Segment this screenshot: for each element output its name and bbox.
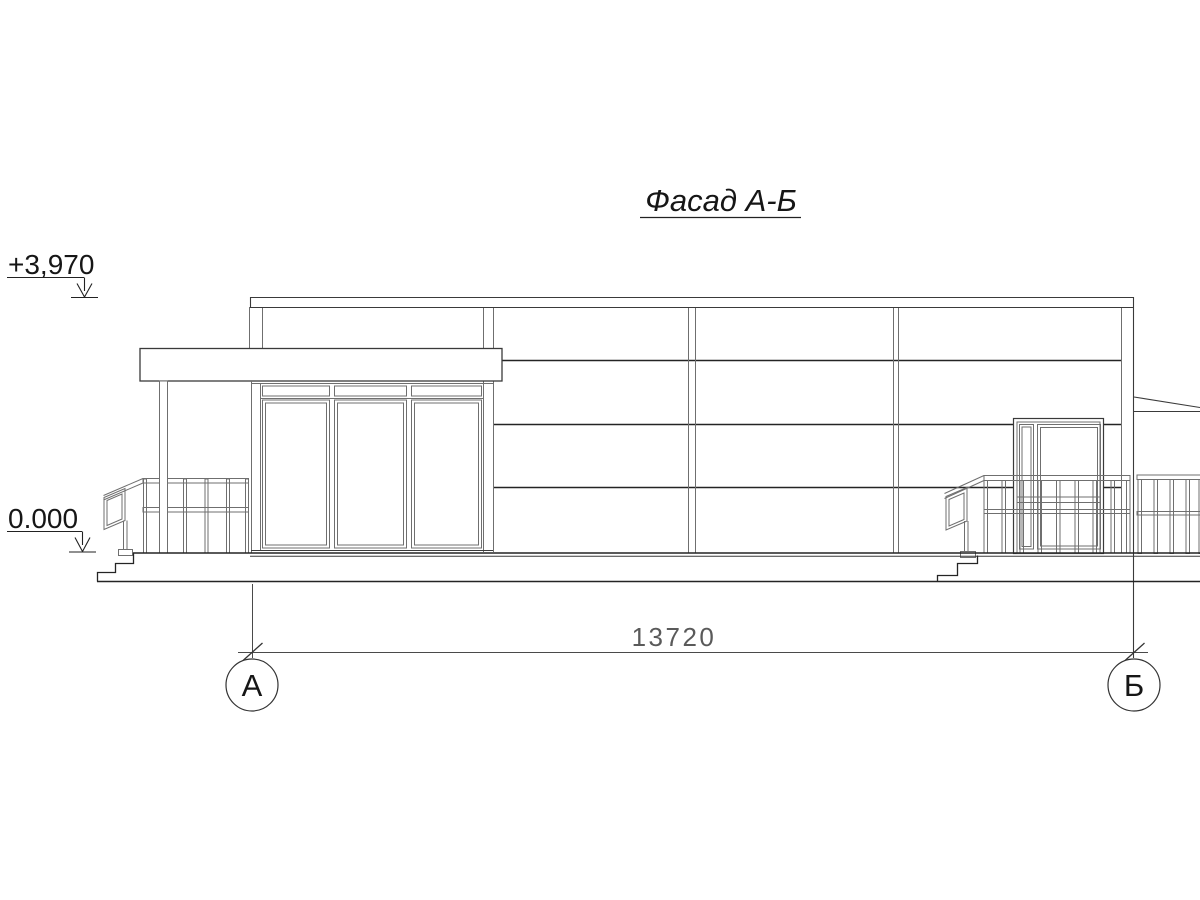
dimension-line: 13720 (238, 584, 1148, 661)
right-steps (938, 556, 978, 582)
storefront-glazing (251, 381, 493, 553)
drawing-title-text: Фасад А-Б (645, 183, 797, 218)
roof-band (250, 297, 1134, 308)
elevation-upper-value: +3,970 (8, 249, 94, 280)
axis-label-a: А (242, 668, 263, 703)
ground-platform (97, 553, 1200, 582)
facade-drawing-sheet: 13720 А Б +3,970 0.000 Фасад А-Б (0, 0, 1200, 900)
left-steps (98, 553, 134, 582)
axis-circle-a: А (226, 659, 278, 711)
axis-circle-b: Б (1108, 659, 1160, 711)
drawing-canvas: 13720 А Б +3,970 0.000 Фасад А-Б (0, 0, 1200, 900)
elevation-mark-upper: +3,970 (7, 249, 98, 298)
facade-columns (250, 307, 1122, 553)
axis-label-b: Б (1124, 668, 1144, 703)
entrance-door (1014, 419, 1104, 554)
dimension-value: 13720 (632, 622, 717, 652)
entrance-canopy (140, 349, 502, 382)
left-porch-railing (104, 479, 249, 556)
elevation-mark-lower: 0.000 (7, 503, 96, 552)
right-annex-roof (1134, 397, 1200, 412)
far-right-railing (1137, 475, 1200, 554)
canopy-post (160, 381, 168, 553)
elevation-lower-value: 0.000 (8, 503, 78, 534)
drawing-title: Фасад А-Б (640, 183, 801, 218)
